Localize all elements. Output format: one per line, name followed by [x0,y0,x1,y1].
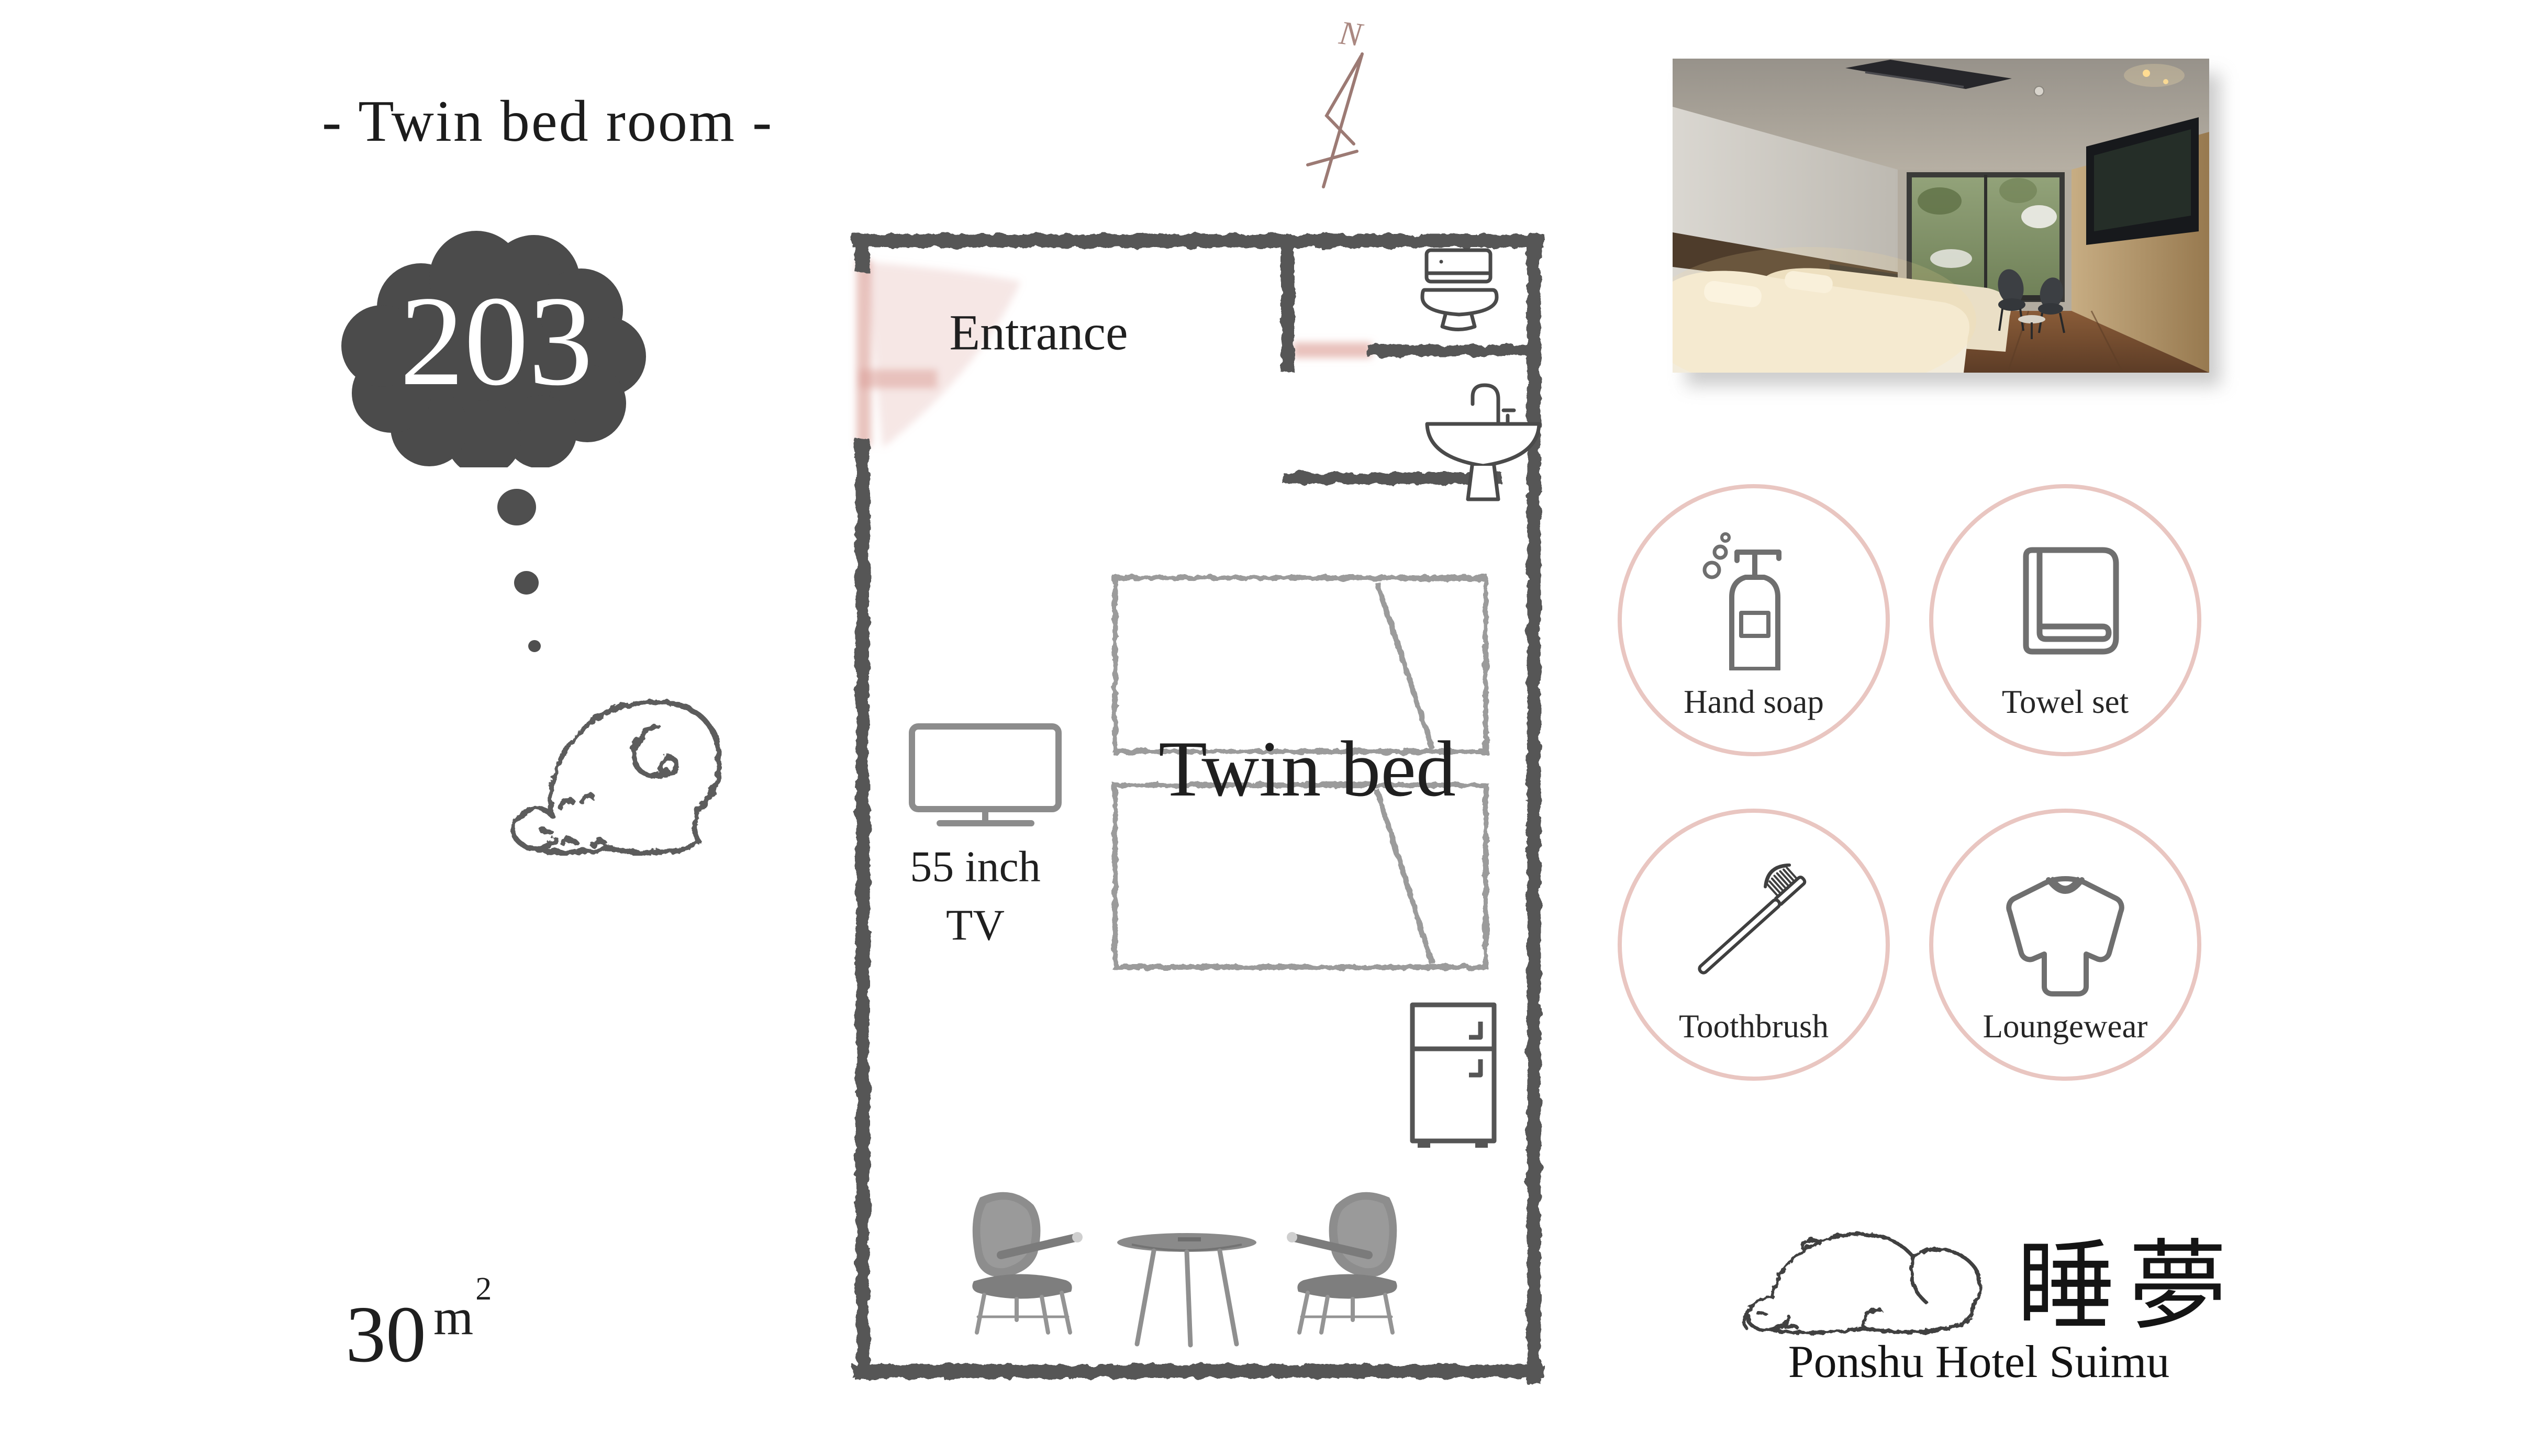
amenity-label: Hand soap [1622,683,1886,721]
room-number: 203 [341,222,651,467]
tv-size-label: 55 inch [910,842,1041,892]
poster-canvas: - Twin bed room - 203 [0,0,2539,1456]
amenity-card-towel-set: Towel set [1929,484,2201,756]
sleeping-bear-sketch [484,641,772,856]
toothbrush-icon [1673,837,1835,999]
fridge-icon [1412,1005,1494,1148]
entrance-label: Entrance [949,304,1128,362]
compass-north-icon: N [1293,13,1429,196]
brand-kanji: 睡夢 [2017,1207,2241,1349]
tv-label: TV [946,900,1005,951]
chair-icon-left [972,1192,1083,1332]
tv-icon [912,726,1059,823]
toilet-icon [1422,250,1497,330]
room-photo [1673,59,2209,373]
amenity-label: Loungewear [1933,1007,2197,1046]
thought-dot-medium [514,571,539,595]
thought-dot-large [497,489,536,525]
area-value: 30 [346,1290,426,1379]
brand-name: Ponshu Hotel Suimu [1788,1336,2170,1388]
room-area: 30m2 [346,1289,492,1381]
amenity-label: Towel set [1933,683,2197,721]
amenity-card-loungewear: Loungewear [1929,809,2201,1081]
amenity-card-hand-soap: Hand soap [1618,484,1890,756]
area-exponent: 2 [475,1271,492,1307]
towel-icon [2000,541,2131,661]
amenity-card-toothbrush: Toothbrush [1618,809,1890,1081]
amenity-label: Toothbrush [1622,1007,1886,1046]
loungewear-icon [1987,861,2144,997]
soap-dispenser-icon [1691,529,1817,670]
page-title: - Twin bed room - [322,88,773,155]
compass-label: N [1337,14,1365,53]
chair-icon-right [1287,1192,1397,1332]
area-unit: m [433,1289,473,1346]
table-icon [1117,1233,1256,1345]
twin-bed-label: Twin bed [1159,723,1456,814]
logo-bear-sketch [1735,1203,2008,1338]
